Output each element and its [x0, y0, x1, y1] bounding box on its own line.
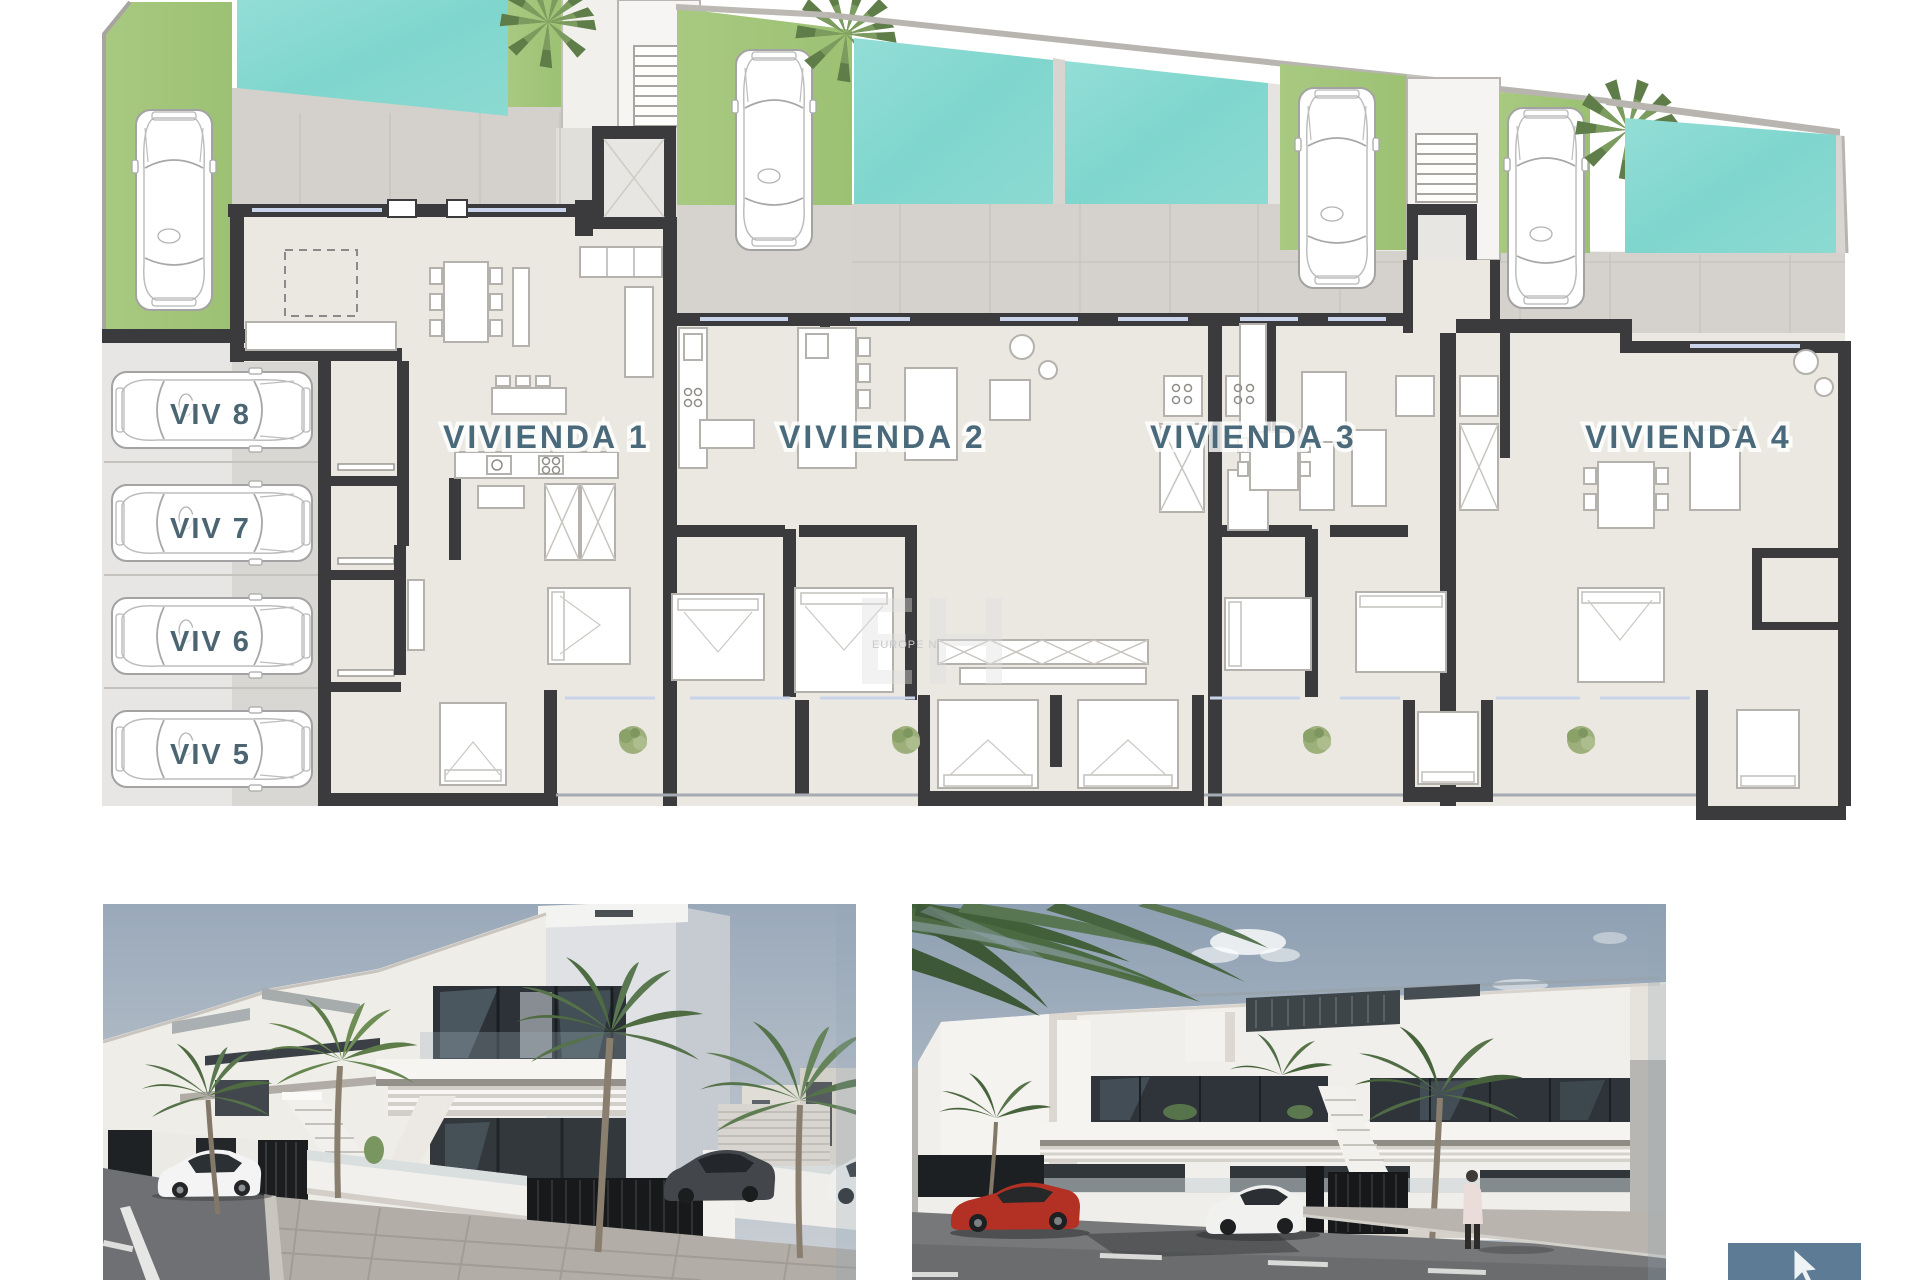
svg-text:VIV 6: VIV 6 [170, 626, 251, 658]
svg-text:VIVIENDA 2: VIVIENDA 2 [779, 419, 986, 455]
svg-text:VIVIENDA 4: VIVIENDA 4 [1585, 419, 1792, 455]
svg-text:VIV 5: VIV 5 [170, 739, 251, 771]
svg-text:EUROPE N: EUROPE N [872, 639, 937, 651]
svg-text:VIVIENDA 1: VIVIENDA 1 [443, 419, 650, 455]
svg-text:VIV 8: VIV 8 [170, 399, 251, 431]
svg-text:VIVIENDA 3: VIVIENDA 3 [1150, 419, 1357, 455]
svg-text:VIV 7: VIV 7 [170, 513, 251, 545]
